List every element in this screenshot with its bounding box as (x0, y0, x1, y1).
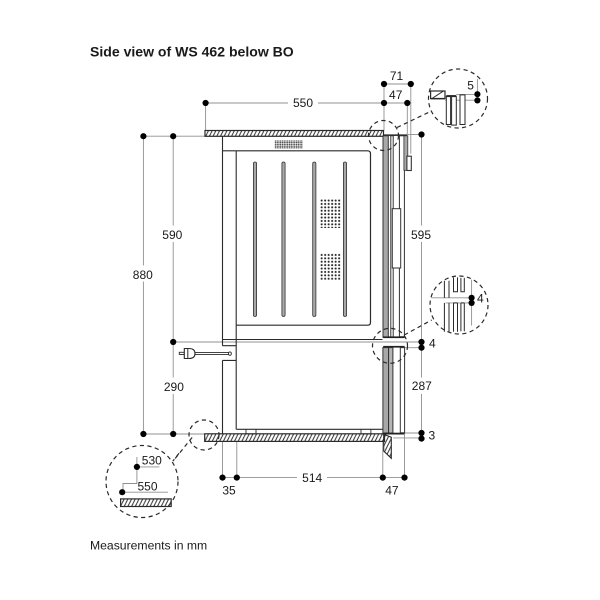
svg-text:47: 47 (389, 88, 403, 102)
svg-text:71: 71 (390, 69, 404, 83)
svg-text:550: 550 (137, 480, 157, 494)
svg-text:287: 287 (412, 379, 432, 393)
svg-text:4: 4 (477, 292, 484, 306)
svg-text:595: 595 (411, 228, 431, 242)
svg-text:290: 290 (164, 380, 184, 394)
svg-text:530: 530 (142, 454, 162, 468)
svg-text:4: 4 (429, 337, 436, 351)
svg-text:35: 35 (222, 484, 236, 498)
svg-text:Measurements in mm: Measurements in mm (90, 538, 207, 552)
svg-text:590: 590 (162, 228, 182, 242)
svg-text:514: 514 (302, 471, 322, 485)
svg-text:3: 3 (428, 428, 435, 442)
svg-text:5: 5 (467, 78, 474, 92)
svg-text:47: 47 (385, 484, 399, 498)
svg-text:550: 550 (293, 96, 313, 110)
svg-text:Side view of WS 462 below BO: Side view of WS 462 below BO (90, 44, 294, 60)
svg-text:880: 880 (133, 268, 153, 282)
